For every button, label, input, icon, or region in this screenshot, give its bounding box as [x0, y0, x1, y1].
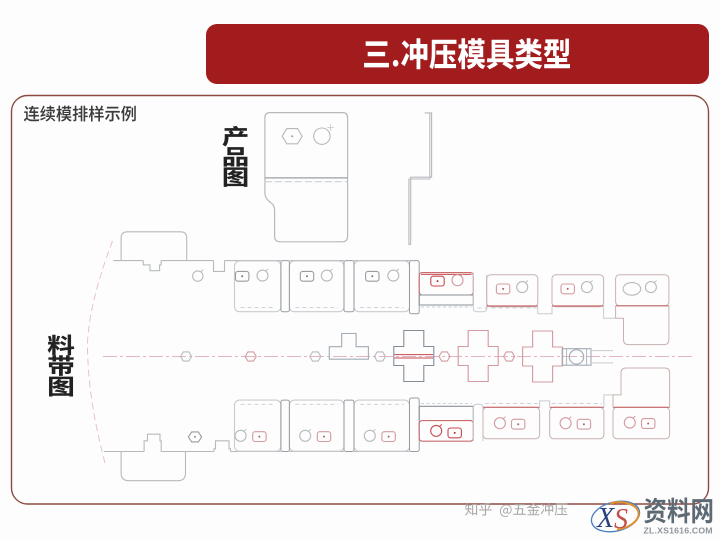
svg-text:X: X: [596, 503, 615, 534]
svg-text:ZL.XS1616.COM: ZL.XS1616.COM: [644, 526, 713, 536]
svg-text:S: S: [614, 504, 628, 535]
